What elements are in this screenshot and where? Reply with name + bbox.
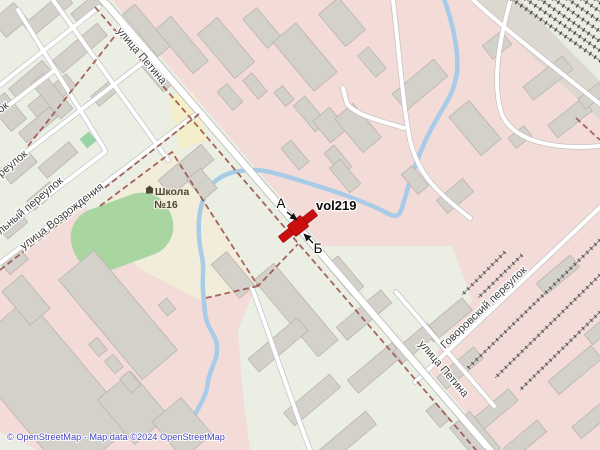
school-number: №16 (154, 199, 178, 211)
marker-id-label: vol219 (316, 198, 356, 213)
school-name: Школа (155, 186, 189, 198)
map-attribution[interactable]: © OpenStreetMap - Map data ©2024 OpenStr… (7, 432, 225, 442)
map-viewport[interactable]: улица Петина улица Петина улица Возрожде… (0, 0, 600, 450)
endpoint-b-label: Б (314, 241, 323, 256)
osm-map-canvas[interactable]: улица Петина улица Петина улица Возрожде… (0, 0, 600, 450)
endpoint-a-label: А (276, 196, 285, 211)
